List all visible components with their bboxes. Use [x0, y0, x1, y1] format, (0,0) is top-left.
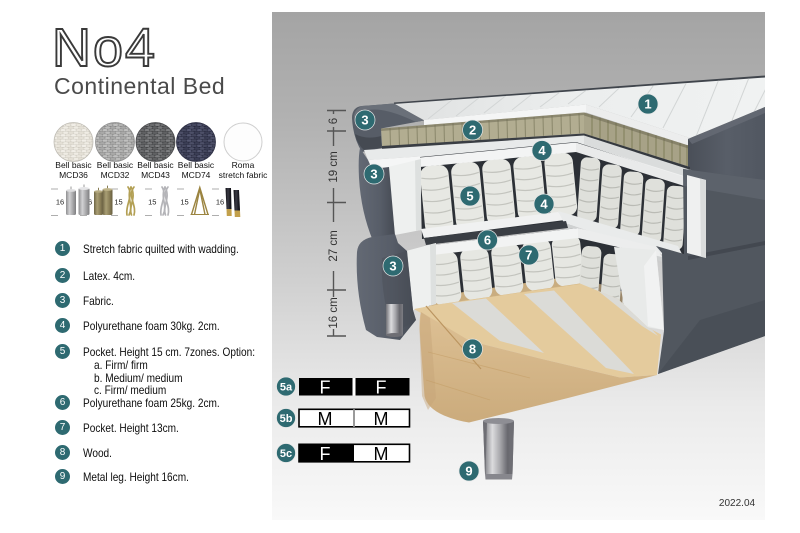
svg-text:5b: 5b: [280, 413, 293, 425]
svg-text:4: 4: [540, 197, 548, 212]
svg-text:M: M: [318, 409, 333, 429]
svg-text:F: F: [376, 378, 387, 398]
svg-text:M: M: [374, 409, 389, 429]
svg-text:F: F: [320, 444, 331, 464]
svg-text:3: 3: [361, 113, 368, 128]
svg-text:2: 2: [469, 123, 476, 138]
svg-text:F: F: [320, 378, 331, 398]
svg-text:3: 3: [389, 259, 396, 274]
svg-text:9: 9: [465, 464, 472, 479]
svg-text:19 cm: 19 cm: [328, 151, 340, 182]
svg-text:2022.04: 2022.04: [719, 498, 756, 509]
svg-text:M: M: [374, 444, 389, 464]
svg-text:5: 5: [466, 189, 473, 204]
svg-text:5c: 5c: [280, 448, 292, 460]
svg-text:6: 6: [328, 118, 340, 124]
svg-text:27 cm: 27 cm: [328, 230, 340, 261]
svg-text:4: 4: [538, 143, 546, 158]
svg-text:5a: 5a: [280, 382, 293, 394]
svg-text:7: 7: [525, 248, 532, 263]
svg-text:16 cm: 16 cm: [328, 297, 340, 328]
svg-text:6: 6: [484, 233, 491, 248]
svg-text:8: 8: [469, 342, 476, 357]
svg-text:3: 3: [370, 167, 377, 182]
svg-text:1: 1: [644, 97, 651, 112]
